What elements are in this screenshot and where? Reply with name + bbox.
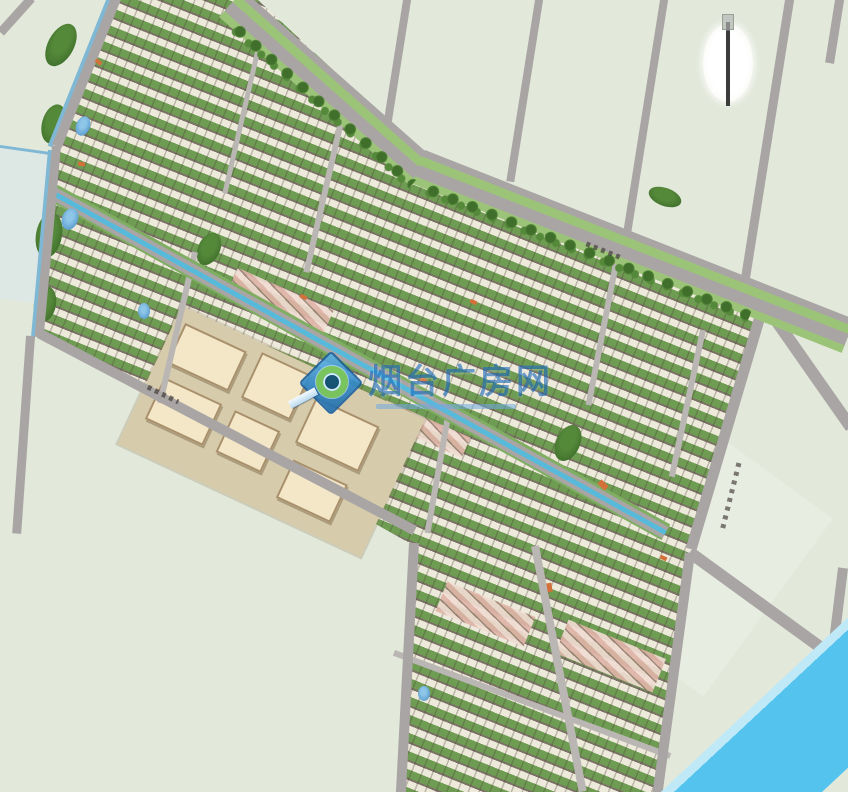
road-top-left-corner bbox=[0, 0, 35, 36]
logo-magnifier-ring bbox=[316, 366, 348, 398]
road-north-grid bbox=[506, 0, 544, 182]
north-compass bbox=[700, 14, 756, 104]
compass-needle-icon bbox=[726, 22, 730, 106]
pond bbox=[138, 303, 150, 319]
pond bbox=[418, 686, 430, 701]
road-north-grid bbox=[825, 0, 845, 64]
watermark-text: 烟台广房网 bbox=[368, 360, 588, 404]
tree-cluster bbox=[646, 183, 684, 212]
watermark-subtext-blur bbox=[376, 404, 516, 409]
tree-cluster bbox=[39, 19, 84, 72]
road-north-grid bbox=[382, 0, 412, 133]
site-plan-map: 烟台广房网 bbox=[0, 0, 848, 792]
site-watermark: 烟台广房网 bbox=[292, 346, 592, 430]
magnifier-diamond-logo-icon bbox=[292, 350, 372, 426]
road-far-west bbox=[12, 336, 35, 534]
